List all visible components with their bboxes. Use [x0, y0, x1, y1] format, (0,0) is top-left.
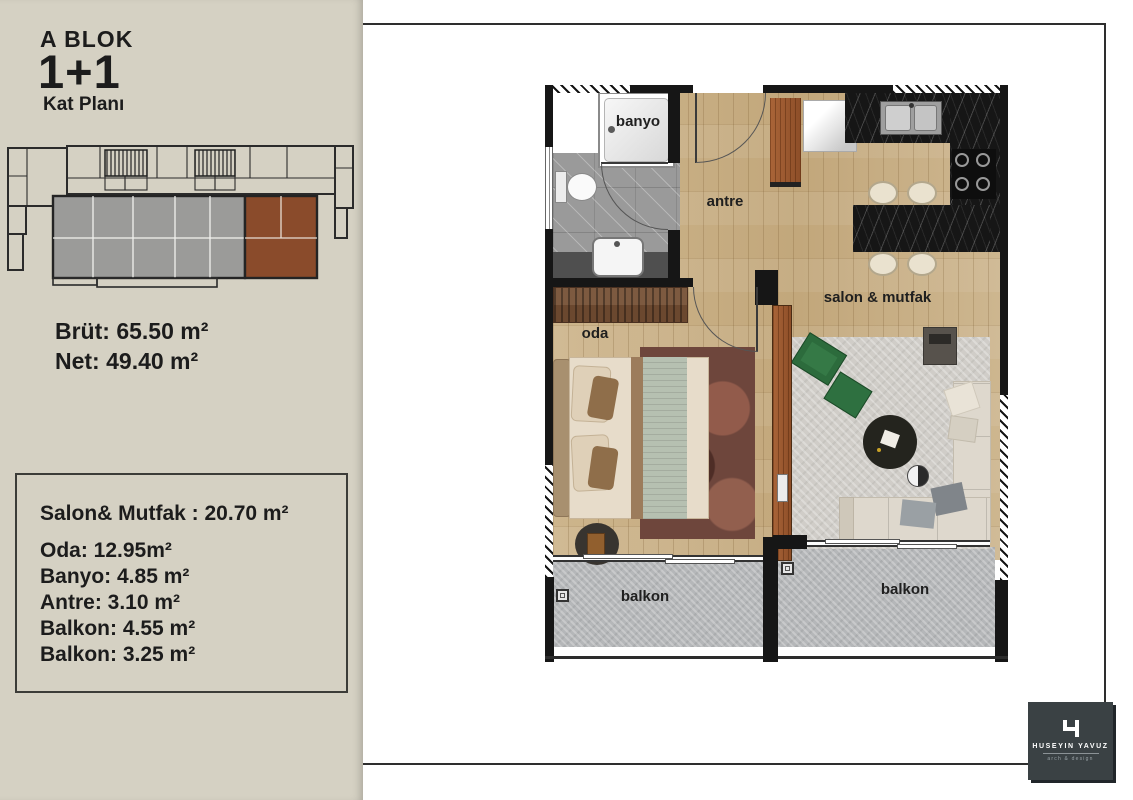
- balcony-left-window: [553, 555, 763, 562]
- room-areas-box: Salon& Mutfak : 20.70 m² Oda: 12.95m² Ba…: [15, 473, 348, 693]
- wall-bathroom-right-upper: [668, 93, 680, 163]
- entry-cabinet: [770, 98, 801, 187]
- side-table-small: [907, 465, 929, 487]
- window-slider: [583, 554, 673, 559]
- burner: [955, 153, 969, 167]
- logo-divider: [1043, 753, 1099, 754]
- kitchen-island: [853, 205, 990, 252]
- stair-core: [105, 150, 147, 176]
- balcony-right-window: [807, 540, 990, 547]
- bar-chair: [868, 181, 898, 205]
- wall-right: [1000, 85, 1008, 395]
- other-units: [53, 196, 245, 278]
- area-item: Banyo: 4.85 m²: [40, 564, 346, 590]
- burner: [976, 153, 990, 167]
- bar-chair: [907, 252, 937, 276]
- sidebar: A BLOK 1+1 Kat Planı: [0, 0, 363, 800]
- wall-left-post: [545, 577, 554, 662]
- balcony-right-label: balkon: [840, 581, 970, 598]
- balcony-left-railing: [545, 656, 763, 659]
- shower: [598, 92, 675, 168]
- wall-right-post: [995, 580, 1008, 662]
- bathroom-window: [545, 147, 553, 229]
- apartment-plan: banyo antre salon & mutfak: [545, 85, 1008, 665]
- burner: [976, 177, 990, 191]
- window-slider: [825, 539, 900, 544]
- architect-logo: HUSEYIN YAVUZ arch & design: [1028, 702, 1113, 780]
- wall-left: [545, 85, 553, 465]
- table-napkin: [880, 430, 900, 449]
- kitchen-sink: [880, 101, 942, 135]
- bathroom-faucet: [614, 241, 620, 247]
- area-item: Antre: 3.10 m²: [40, 590, 346, 616]
- utility-box-icon: [781, 562, 794, 575]
- key-plan: [5, 138, 357, 300]
- sink-basin: [885, 105, 911, 131]
- wall-hatch-top-left: [548, 85, 630, 93]
- burner: [955, 177, 969, 191]
- wall-hatch-top-right: [893, 85, 1000, 93]
- sink-faucet: [909, 103, 914, 108]
- stair-core: [195, 150, 235, 176]
- tv-unit: [923, 327, 957, 365]
- gross-area: Brüt: 65.50 m²: [55, 318, 208, 345]
- floorplan-sheet: A BLOK 1+1 Kat Planı: [0, 0, 1133, 800]
- balcony-right-railing: [778, 656, 1008, 659]
- wardrobe: [553, 287, 688, 323]
- plan-subtitle: Kat Planı: [43, 94, 124, 116]
- living-kitchen-label: salon & mutfak: [800, 289, 955, 306]
- bar-chair: [907, 181, 937, 205]
- area-item: Balkon: 3.25 m²: [40, 642, 346, 668]
- unit-type-title: 1+1: [38, 44, 121, 99]
- bedroom-label: oda: [565, 325, 625, 342]
- utility-box-icon: [556, 589, 569, 602]
- sink-basin: [914, 105, 937, 131]
- area-item: Oda: 12.95m²: [40, 538, 346, 564]
- armchair-seat: [800, 342, 837, 377]
- area-item: Salon& Mutfak : 20.70 m²: [40, 501, 346, 527]
- window-slider: [897, 544, 957, 549]
- bed-trim: [631, 357, 643, 519]
- wall-balcony-right-stub: [773, 535, 807, 549]
- stove: [952, 149, 996, 199]
- wall-hatch-right: [1000, 395, 1008, 580]
- bar-chair: [868, 252, 898, 276]
- balcony-left-label: balkon: [585, 588, 705, 605]
- bathroom-niche: [553, 93, 598, 153]
- coffee-table: [863, 415, 917, 469]
- toilet-bowl: [567, 173, 597, 201]
- wall-between-balconies: [763, 537, 778, 662]
- sofa-pillow-gray: [900, 499, 937, 528]
- wall-bedroom-top-left: [545, 278, 693, 287]
- wall-stub-hall: [755, 270, 778, 305]
- toilet-tank: [555, 171, 567, 203]
- sofa-pillow: [947, 415, 978, 443]
- sliding-door-handle: [777, 474, 788, 502]
- logo-monogram-icon: [1063, 720, 1079, 737]
- logo-tagline: arch & design: [1047, 756, 1093, 762]
- area-item: Balkon: 4.55 m²: [40, 616, 346, 642]
- bedside-tray: [587, 533, 605, 555]
- wall-bathroom-right-lower: [668, 230, 680, 278]
- bed-throw: [643, 357, 687, 519]
- tv-screen: [929, 334, 951, 344]
- sofa-armrest: [839, 497, 854, 543]
- sliding-door-panel: [772, 305, 792, 561]
- hall-label: antre: [680, 193, 770, 210]
- net-area: Net: 49.40 m²: [55, 348, 198, 375]
- table-dot: [877, 448, 881, 452]
- window-slider: [665, 559, 735, 564]
- logo-name: HUSEYIN YAVUZ: [1032, 743, 1108, 750]
- wall-hatch-left: [545, 465, 553, 577]
- bathroom-label: banyo: [601, 113, 675, 130]
- window-mullion: [549, 147, 550, 229]
